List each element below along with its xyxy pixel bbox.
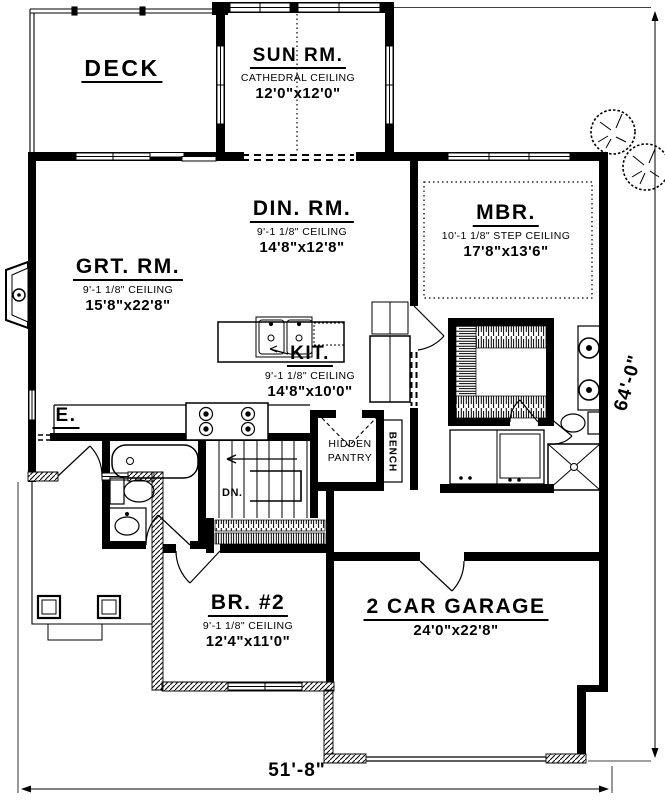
laundry-appliances [450,430,544,484]
room-name: MBR. [473,202,539,227]
hidden-pantry-label: HIDDEN PANTRY [328,437,373,465]
garage-entry-door [420,561,464,591]
sliding-door [150,153,184,158]
dishwasher [314,323,344,345]
kitchen-fixtures [54,302,410,440]
range [186,403,268,440]
toilet-tank [588,412,600,434]
room-name: SUN RM. [250,46,347,69]
master-bedroom-door [414,306,444,350]
entry-label: E. [53,406,80,429]
stairs-down-label: DN. [222,487,242,499]
room-name: 2 CAR GARAGE [363,596,548,621]
floor-plan: DECK SUN RM. CATHEDRAL CEILING 12'0"x12'… [0,0,665,800]
room-size: 14'8"x10'0" [267,384,352,400]
shower [548,444,600,490]
bench-label: BENCH [387,432,398,473]
width-dimension-label: 51'-8" [268,760,326,782]
room-size: 17'8"x13'6" [463,244,548,260]
master-bath-fixtures [548,326,602,490]
room-ceiling: 9'-1 1/8" CEILING [265,371,355,382]
room-size: 24'0"x22'8" [413,623,498,639]
room-ceiling: 9'-1 1/8" CEILING [83,285,173,296]
front-porch [32,481,152,640]
room-label-sunroom: SUN RM. CATHEDRAL CEILING 12'0"x12'0" [241,46,355,102]
room-name: KIT. [287,344,333,367]
room-label-dining: DIN. RM. 9'-1 1/8" CEILING 14'8"x12'8" [250,198,354,256]
bedroom2-closet [215,520,325,544]
room-ceiling: 9'-1 1/8" CEILING [203,621,293,632]
stair-direction-arrow [227,455,297,463]
staircase [219,441,307,518]
porch-step [48,624,102,640]
room-name: BR. #2 [208,592,288,617]
fireplace [6,262,28,328]
room-label-great-room: GRT. RM. 9'-1 1/8" CEILING 15'8"x22'8" [73,256,183,314]
toilet-bowl [124,480,154,502]
room-size: 12'0"x12'0" [255,86,340,102]
room-name: DIN. RM. [250,198,354,223]
room-ceiling: 9'-1 1/8" CEILING [257,227,347,238]
room-ceiling: 10'-1 1/8" STEP CEILING [442,231,571,242]
garage-overhead-door [366,757,546,761]
room-size: 15'8"x22'8" [85,298,170,314]
room-size: 12'4"x11'0" [206,634,290,650]
room-size: 14'8"x12'8" [259,240,344,256]
room-name: GRT. RM. [73,256,183,281]
room-label-deck: DECK [81,56,162,83]
sliding-door [182,157,216,162]
bedroom2-door [176,551,220,583]
room-label-garage: 2 CAR GARAGE 24'0"x22'8" [363,596,548,639]
porch-column [38,596,60,618]
porch-column [98,596,120,618]
room-label-kitchen: KIT. 9'-1 1/8" CEILING 14'8"x10'0" [265,344,355,400]
stair-rail [250,471,301,501]
dimension-lines [18,8,655,794]
room-name: DECK [81,56,162,83]
floor-plan-drawing [0,0,665,800]
master-closet [456,326,546,418]
sink-bowl [115,517,139,535]
toilet-tank [110,478,124,504]
room-ceiling: CATHEDRAL CEILING [241,73,355,84]
room-label-bedroom2: BR. #2 9'-1 1/8" CEILING 12'4"x11'0" [203,592,293,650]
front-door [58,446,102,476]
dryer [500,434,540,478]
room-label-master-bedroom: MBR. 10'-1 1/8" STEP CEILING 17'8"x13'6" [442,202,571,260]
